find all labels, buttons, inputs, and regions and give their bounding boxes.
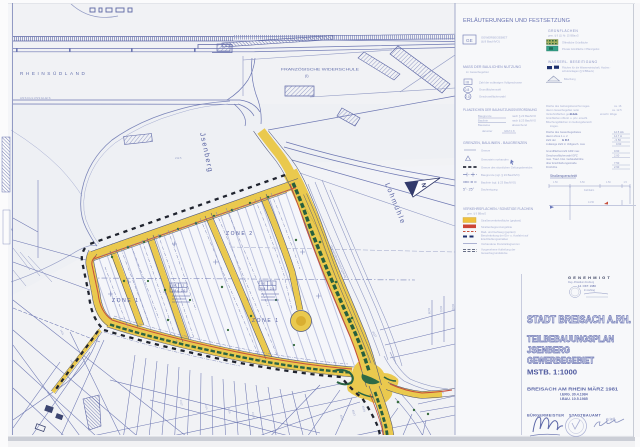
svg-text:Grenze des räumlichen Geltungs: Grenze des räumlichen Geltungsbereichs [481, 166, 533, 170]
svg-text:Grünflächen öffentl. u. priv.: Grünflächen öffentl. u. priv. einschl. [546, 116, 588, 120]
svg-text:GE: GE [261, 282, 265, 286]
svg-text:nach § 23 BauNVO: nach § 23 BauNVO [512, 119, 537, 123]
svg-text:Baugrenze (vgl. § 23 BauNVO): Baugrenze (vgl. § 23 BauNVO) [481, 173, 520, 177]
svg-text:0.8: 0.8 [465, 88, 470, 92]
svg-text:Straßenverkehrsfläche (geplan: Straßenverkehrsfläche (geplant) [481, 219, 521, 223]
svg-text:insges.: insges. [550, 124, 559, 128]
svg-text:14.7 H: 14.7 H [614, 134, 622, 138]
svg-text:Baulinie: Baulinie [478, 119, 488, 123]
svg-text:14. OKT. 1986: 14. OKT. 1986 [578, 284, 596, 288]
svg-text:Fläche des Gewerbegebietes: Fläche des Gewerbegebietes [546, 130, 582, 134]
svg-text:2.0: 2.0 [465, 95, 470, 99]
svg-text:2.00: 2.00 [614, 154, 620, 158]
svg-text:Zahl der zulässigen Vollgescho: Zahl der zulässigen Vollgeschosse [479, 81, 522, 85]
svg-text:Grundflächenzahl GRZ max: Grundflächenzahl GRZ max [546, 149, 580, 153]
svg-text:ANSCHLUSSGLEIS: ANSCHLUSSGLEIS [20, 96, 51, 100]
svg-text:einschl. Wege: einschl. Wege [600, 112, 617, 116]
svg-text:212.5: 212.5 [175, 156, 182, 160]
svg-text:1.50: 1.50 [553, 181, 558, 184]
svg-text:BREISACH AM RHEIN MÄRZ: BREISACH AM RHEIN MÄRZ 1981 [527, 387, 619, 392]
svg-text:6.50: 6.50 [580, 181, 585, 184]
svg-text:- 0.50: - 0.50 [614, 138, 621, 142]
svg-text:B.A.B.: B.A.B. [570, 112, 578, 116]
svg-text:VERKEHRSFLÄCHEN / SONSTIGE FL: VERKEHRSFLÄCHEN / SONSTIGE FLÄCHEN [463, 207, 534, 211]
svg-text:7.50: 7.50 [614, 161, 620, 165]
svg-text:(§ 8 BauNVO): (§ 8 BauNVO) [481, 40, 500, 44]
svg-text:5°- 25°: 5°- 25° [463, 188, 475, 192]
svg-text:12: 12 [270, 282, 274, 286]
svg-text:Straßenquerschnitt: Straßenquerschnitt [550, 174, 577, 178]
svg-text:Bauweise: Bauweise [478, 123, 491, 127]
svg-text:darunter: darunter [482, 129, 492, 133]
svg-text:gem. § 9 BBauG: gem. § 9 BBauG [467, 212, 486, 216]
svg-text:GE: GE [172, 284, 176, 288]
svg-text:Dachneigung: Dachneigung [481, 188, 498, 192]
svg-text:Baulinie (vgl. § 23 BauNVO): Baulinie (vgl. § 23 BauNVO) [481, 181, 516, 185]
svg-text:BÜRGERMEISTER: BÜRGERMEISTER [527, 413, 564, 418]
svg-text:Zahl der: Zahl der [546, 138, 556, 142]
svg-text:2.0: 2.0 [270, 286, 275, 290]
svg-text:ZONE 1: ZONE 1 [252, 318, 280, 324]
svg-text:max. Trauf- bzw. Gebäudehöhe: max. Trauf- bzw. Gebäudehöhe [546, 157, 584, 161]
svg-text:Firsthöhe: Firsthöhe [546, 165, 558, 169]
svg-text:GRZ 0.8: GRZ 0.8 [504, 129, 515, 133]
svg-text:über Erschließungsstraße: über Erschließungsstraße [546, 161, 577, 165]
svg-text:davon Gewerbegebiet netto: davon Gewerbegebiet netto [546, 108, 580, 112]
svg-text:Fläche des Geltungsbereichs in: Fläche des Geltungsbereichs insges. [546, 104, 590, 108]
svg-text:ZONE 1: ZONE 1 [112, 298, 140, 304]
svg-text:Im Auftrag: Im Auftrag [584, 289, 596, 292]
svg-text:0.8: 0.8 [172, 288, 177, 292]
svg-text:12.5 HA: 12.5 HA [614, 130, 624, 134]
svg-text:Geschossflächenzahl GFZ: Geschossflächenzahl GFZ [546, 154, 578, 158]
svg-text:MASS DER BAULICHEN NUTZUNG: MASS DER BAULICHEN NUTZUNG [463, 65, 521, 69]
svg-text:JSENBERG: JSENBERG [527, 345, 570, 355]
svg-text:Vorhandene Flurstücksgrenzen: Vorhandene Flurstücksgrenzen [481, 242, 520, 246]
svg-text:4539: 4539 [427, 308, 432, 315]
svg-text:FRANZÖSISCHE WIDERSCHULE: FRANZÖSISCHE WIDERSCHULE [281, 67, 359, 72]
svg-text:Geschossflächenzahl: Geschossflächenzahl [479, 95, 506, 99]
svg-text:G R Z: G R Z [562, 138, 570, 142]
svg-text:Böschungsflächen im Geltungsbe: Böschungsflächen im Geltungsbereich [546, 120, 592, 124]
svg-text:Private Grünfläche / Pflanzg: Private Grünfläche / Pflanzgebot [562, 47, 600, 51]
svg-text:I.ERG. 30.4.1984: I.ERG. 30.4.1984 [560, 393, 588, 397]
svg-text:zulässige Zahl d. Vollgesch.: zulässige Zahl d. Vollgesch. max [546, 142, 586, 146]
svg-text:ERLÄUTERUNGEN UND FESTSETZUN: ERLÄUTERUNGEN UND FESTSETZUNG [463, 17, 570, 24]
svg-text:gem. § 9 (1) Nr. 15 BBauG: gem. § 9 (1) Nr. 15 BBauG [548, 34, 579, 38]
svg-text:im Gewerbegebiet: im Gewerbegebiet [466, 70, 489, 74]
svg-text:Grundflächenzahl: Grundflächenzahl [479, 88, 501, 92]
svg-text:Baugrenze: Baugrenze [478, 114, 492, 118]
svg-text:2.0: 2.0 [181, 288, 186, 292]
svg-text:ZONE 2: ZONE 2 [226, 231, 254, 237]
svg-text:2.90: 2.90 [614, 165, 620, 169]
svg-text:0.60: 0.60 [616, 142, 622, 146]
svg-text:14.50: 14.50 [588, 201, 595, 204]
svg-text:III: III [466, 80, 469, 85]
svg-text:Straßenbegrenzungslinie: Straßenbegrenzungslinie [481, 225, 513, 229]
svg-text:abweichend: abweichend [512, 123, 527, 127]
svg-text:TEILBEBAUUNGSPLAN: TEILBEBAUUNGSPLAN [527, 334, 614, 344]
svg-text:Böschung: Böschung [564, 77, 576, 81]
svg-text:Grenze: Grenze [481, 149, 491, 153]
svg-text:RHEINSÜDLAND: RHEINSÜDLAND [20, 70, 87, 76]
svg-text:ca. 16: ca. 16 [614, 104, 622, 108]
svg-text:MSTB. 1:1000: MSTB. 1:1000 [527, 368, 577, 377]
svg-text:4541: 4541 [439, 306, 444, 313]
svg-text:Grenzstein vorhanden: Grenzstein vorhanden [481, 158, 509, 162]
svg-text:nach § 23 BauNVO: nach § 23 BauNVO [512, 114, 537, 118]
svg-text:GRENZEN, BAULINIEN - BAUGRENZ: GRENZEN, BAULINIEN - BAUGRENZEN [463, 141, 528, 145]
svg-text:davon Zone 1 u. 2: davon Zone 1 u. 2 [546, 134, 568, 138]
svg-text:GE: GE [466, 38, 473, 43]
svg-text:Gewerbegrundstücke: Gewerbegrundstücke [481, 251, 508, 255]
svg-text:STADT BREISACH A.RH.: STADT BREISACH A.RH. [527, 314, 631, 326]
svg-text:0.8: 0.8 [261, 286, 266, 290]
svg-text:Fahrbahn: Fahrbahn [584, 189, 595, 192]
svg-text:Öffentliche Grünfläche: Öffentliche Grünfläche [562, 41, 588, 45]
svg-text:I.BAU. 10.5.1985: I.BAU. 10.5.1985 [560, 397, 588, 401]
svg-text:WASSERL. BESEITIGUNG: WASSERL. BESEITIGUNG [548, 60, 598, 64]
svg-text:1.50: 1.50 [606, 181, 611, 184]
svg-text:GENEHMIGT: GENEHMIGT [568, 275, 612, 280]
svg-text:GEWERBEGEBIET: GEWERBEGEBIET [527, 356, 594, 366]
svg-text:12: 12 [181, 284, 185, 288]
svg-text:0.60: 0.60 [614, 149, 620, 153]
svg-text:schutzanlagen (§ 9 BBauG): schutzanlagen (§ 9 BBauG) [562, 69, 594, 73]
svg-text:PLANZEICHEN DER BAUNUTZUNGSVE: PLANZEICHEN DER BAUNUTZUNGSVERORDNUNG [463, 108, 537, 112]
svg-text:GRÜNFLÄCHEN: GRÜNFLÄCHEN [548, 29, 578, 33]
svg-text:Erschließungsstraßen: Erschließungsstraßen [481, 237, 509, 241]
svg-text:ca. 12.5: ca. 12.5 [612, 108, 622, 112]
